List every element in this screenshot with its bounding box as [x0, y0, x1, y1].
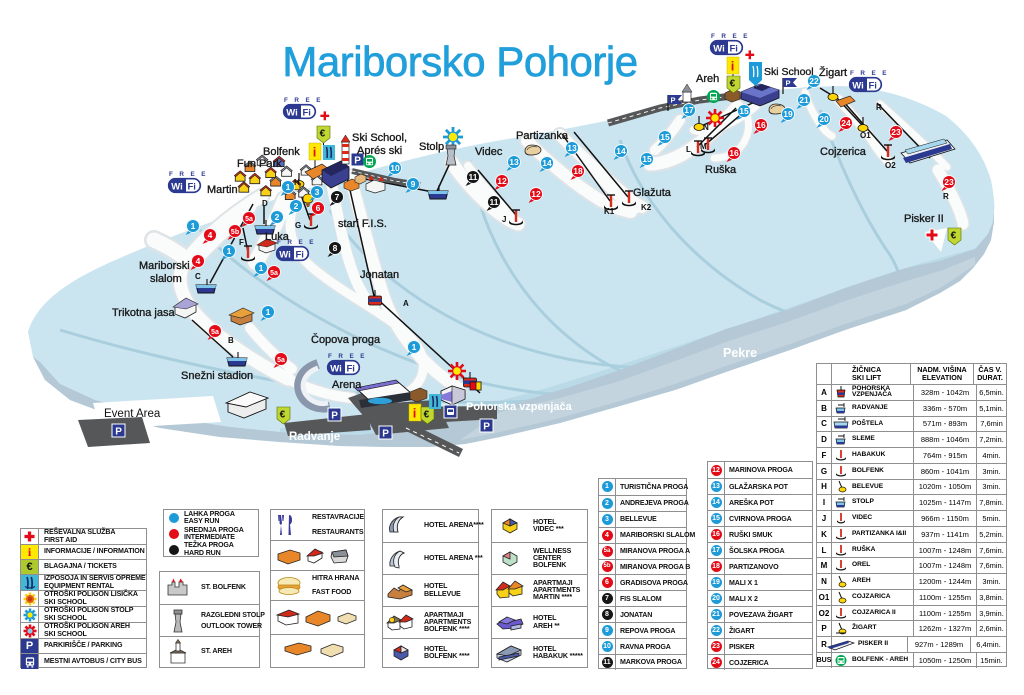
svg-text:G: G: [295, 221, 301, 230]
svg-text:Stolp: Stolp: [419, 141, 444, 153]
svg-text:4: 4: [208, 230, 213, 240]
svg-text:2: 2: [294, 201, 299, 211]
svg-text:O1: O1: [860, 131, 871, 140]
svg-text:14: 14: [542, 158, 552, 168]
svg-text:Radvanje: Radvanje: [289, 431, 340, 443]
svg-text:12: 12: [497, 176, 507, 186]
svg-text:A: A: [403, 299, 409, 308]
svg-text:Trikotna jasa: Trikotna jasa: [112, 307, 175, 319]
svg-text:15: 15: [739, 106, 749, 116]
svg-text:11: 11: [469, 172, 478, 182]
svg-text:Žigart: Žigart: [819, 66, 847, 79]
svg-text:Fun Park: Fun Park: [237, 158, 282, 170]
svg-text:Martin: Martin: [207, 184, 238, 196]
svg-text:J: J: [502, 215, 506, 224]
svg-text:6: 6: [316, 203, 321, 213]
svg-text:Aprés ski: Aprés ski: [357, 145, 402, 157]
svg-text:Areh: Areh: [696, 73, 719, 85]
svg-text:Glažuta: Glažuta: [633, 187, 672, 199]
svg-text:R: R: [876, 103, 882, 112]
svg-text:slalom: slalom: [150, 273, 182, 285]
svg-text:K2: K2: [641, 203, 652, 212]
svg-text:H: H: [294, 178, 300, 187]
svg-text:R: R: [943, 192, 949, 201]
svg-text:1: 1: [286, 182, 291, 192]
svg-text:stari F.I.S.: stari F.I.S.: [338, 218, 387, 230]
svg-text:Jonatan: Jonatan: [360, 269, 399, 281]
svg-text:B: B: [228, 336, 234, 345]
svg-text:17: 17: [684, 105, 694, 115]
svg-text:1: 1: [191, 221, 196, 231]
svg-text:1: 1: [259, 263, 264, 273]
svg-text:Videc: Videc: [475, 146, 503, 158]
svg-text:9: 9: [411, 179, 416, 189]
svg-text:4: 4: [196, 256, 201, 266]
svg-text:8: 8: [333, 243, 338, 253]
svg-text:16: 16: [729, 148, 739, 158]
svg-text:5a: 5a: [245, 216, 253, 223]
svg-text:10: 10: [390, 163, 400, 173]
svg-text:C: C: [195, 272, 201, 281]
svg-text:2: 2: [275, 212, 280, 222]
svg-text:1: 1: [227, 246, 232, 256]
svg-text:Mariborski: Mariborski: [139, 260, 190, 272]
svg-text:13: 13: [567, 143, 577, 153]
svg-text:20: 20: [819, 114, 829, 124]
svg-text:5a: 5a: [211, 329, 219, 336]
svg-text:Bolfenk: Bolfenk: [263, 146, 300, 158]
svg-text:18: 18: [573, 166, 583, 176]
svg-text:Ruška: Ruška: [705, 164, 737, 176]
svg-text:14: 14: [616, 146, 626, 156]
svg-text:Čopova proga: Čopova proga: [311, 333, 381, 346]
svg-text:Luka: Luka: [265, 231, 290, 243]
svg-text:Pohorska vzpenjača: Pohorska vzpenjača: [466, 401, 573, 413]
svg-text:K1: K1: [604, 207, 615, 216]
svg-text:3: 3: [315, 187, 320, 197]
svg-text:1: 1: [266, 307, 271, 317]
svg-text:24: 24: [841, 118, 851, 128]
svg-text:Ski School,: Ski School,: [352, 132, 407, 144]
svg-text:15: 15: [642, 154, 652, 164]
svg-text:M: M: [700, 142, 707, 151]
svg-text:Partizanka: Partizanka: [516, 130, 569, 142]
svg-text:7: 7: [335, 192, 340, 202]
svg-text:D: D: [262, 199, 268, 208]
svg-text:15: 15: [660, 132, 670, 142]
svg-text:N: N: [703, 123, 709, 132]
svg-text:L: L: [686, 145, 691, 154]
svg-text:21: 21: [799, 95, 809, 105]
svg-text:5b: 5b: [231, 229, 239, 236]
svg-text:Snežni stadion: Snežni stadion: [181, 370, 253, 382]
svg-text:Pisker II: Pisker II: [904, 213, 944, 225]
svg-text:13: 13: [509, 157, 519, 167]
svg-text:23: 23: [944, 177, 954, 187]
svg-text:19: 19: [783, 109, 793, 119]
svg-text:12: 12: [531, 189, 541, 199]
svg-text:5a: 5a: [270, 270, 278, 277]
svg-text:16: 16: [756, 120, 766, 130]
svg-text:5a: 5a: [277, 357, 285, 364]
svg-text:Cojzerica: Cojzerica: [820, 146, 867, 158]
svg-text:Arena: Arena: [332, 379, 362, 391]
svg-text:23: 23: [891, 127, 901, 137]
svg-text:11: 11: [490, 197, 499, 207]
svg-text:O2: O2: [885, 161, 896, 170]
svg-text:Pekre: Pekre: [723, 346, 757, 360]
svg-text:F: F: [239, 238, 244, 247]
svg-text:Ski School: Ski School: [764, 66, 814, 78]
svg-text:1: 1: [412, 342, 417, 352]
